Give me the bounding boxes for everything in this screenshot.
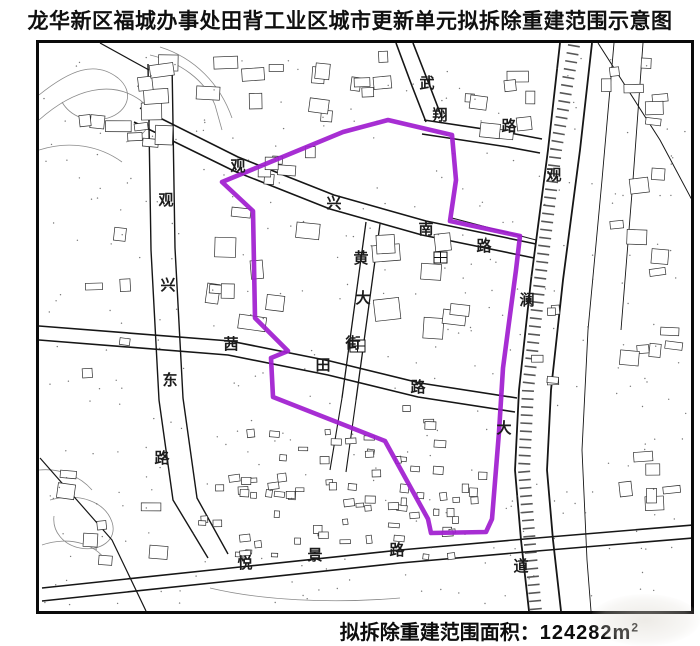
road-label-qiantian-road: 田 [315, 357, 330, 374]
road-label-guanxing-east-road: 路 [154, 449, 170, 467]
road-label-guanxing-south-road: 路 [476, 237, 492, 255]
area-caption: 拟拆除重建范围面积：124282m2 [0, 616, 668, 645]
avenue-hatch-layer [524, 45, 574, 611]
road-label-wuxiang-road: 翔 [431, 106, 447, 124]
road-label-wuxiang-road: 路 [501, 117, 517, 135]
road-label-yuejing-road: 悦 [237, 554, 252, 572]
road-label-guanxing-south-road: 兴 [326, 195, 341, 212]
page-title: 龙华新区福城办事处田背工业区城市更新单元拟拆除重建范围示意图 [0, 5, 700, 35]
area-caption-unit-exponent: 2 [631, 620, 638, 634]
area-caption-value: 124282 [540, 622, 613, 644]
road-label-guanxing-south-road: 观 [230, 158, 245, 175]
road-label-guanxing-south-road: 南 [418, 220, 433, 238]
road-label-huang-street: 黄 [353, 249, 368, 267]
area-caption-unit: m [613, 622, 632, 644]
screenshot-root: { "title": "龙华新区福城办事处田背工业区城市更新单元拟拆除重建范围示… [0, 0, 700, 646]
area-caption-label: 拟拆除重建范围面积： [340, 622, 540, 644]
map-canvas: 武翔路观兴南路观兴东路观澜大道茜田路黄大街悦景路 [39, 43, 691, 611]
road-label-yuejing-road: 景 [307, 546, 322, 564]
road-label-qiantian-road: 茜 [223, 335, 238, 353]
road-label-guanxing-east-road: 观 [158, 192, 173, 209]
road-label-huang-street: 街 [344, 334, 360, 352]
road-label-qiantian-road: 路 [410, 378, 426, 396]
road-label-wuxiang-road: 武 [419, 74, 434, 92]
road-label-yuejing-road: 路 [389, 541, 405, 559]
road-label-guanxing-east-road: 东 [162, 371, 177, 389]
road-label-guanlan-avenue: 道 [513, 557, 528, 575]
road-label-huang-street: 大 [355, 289, 370, 307]
road-labels-layer: 武翔路观兴南路观兴东路观澜大道茜田路黄大街悦景路 [154, 74, 561, 575]
road-label-guanlan-avenue: 澜 [519, 291, 534, 309]
road-label-guanlan-avenue: 观 [546, 167, 561, 184]
road-label-guanxing-east-road: 兴 [160, 277, 175, 294]
buildings-layer [56, 51, 682, 565]
road-label-guanlan-avenue: 大 [496, 419, 511, 437]
map-frame: 武翔路观兴南路观兴东路观澜大道茜田路黄大街悦景路 [36, 40, 694, 614]
